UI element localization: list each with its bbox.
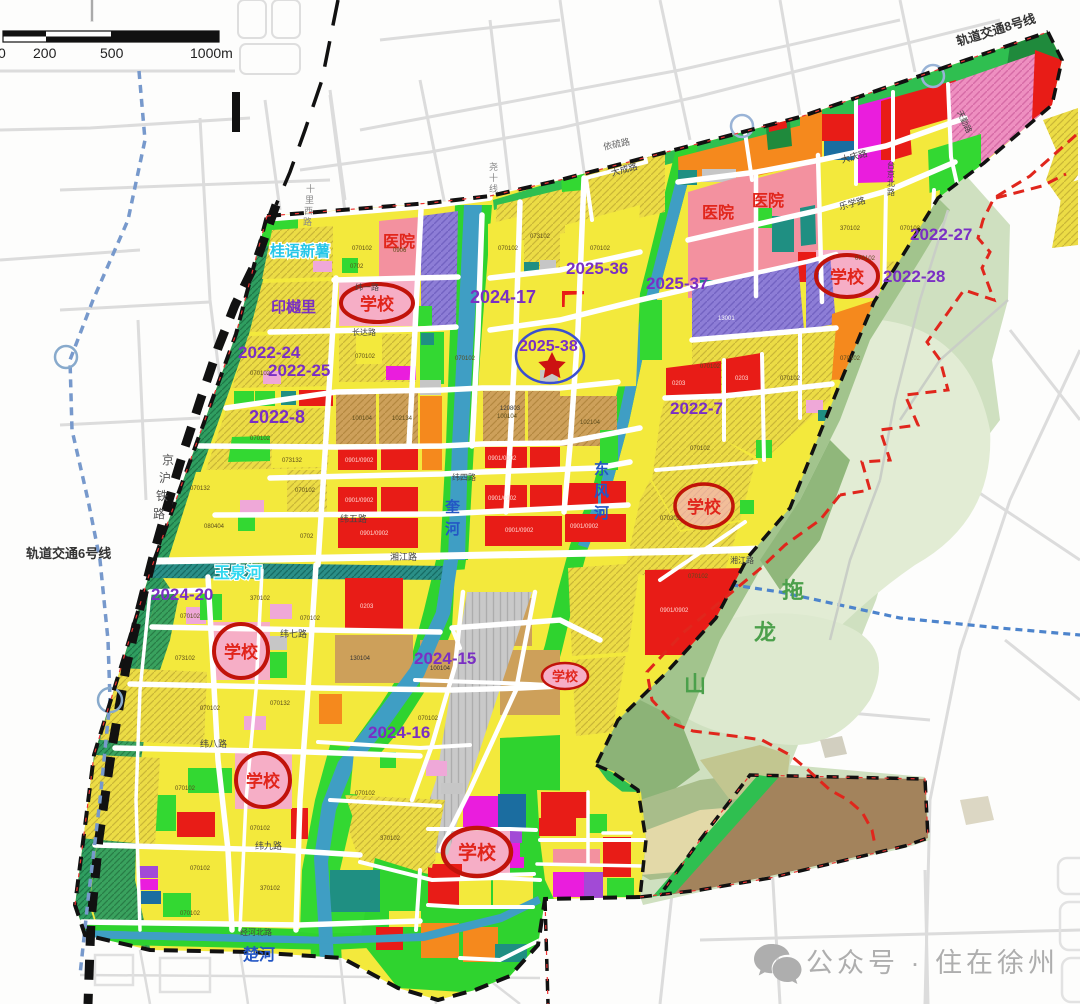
svg-text:073132: 073132	[282, 458, 303, 464]
svg-text:学校: 学校	[458, 841, 497, 864]
svg-text:学校: 学校	[246, 771, 281, 791]
svg-text:073102: 073102	[175, 656, 196, 662]
svg-text:2024-17: 2024-17	[470, 287, 536, 307]
svg-text:2025-36: 2025-36	[566, 259, 628, 278]
svg-text:0: 0	[0, 45, 6, 61]
svg-text:070102: 070102	[855, 256, 876, 262]
svg-text:073102: 073102	[530, 234, 551, 240]
svg-text:纬七路: 纬七路	[280, 628, 307, 639]
svg-text:0203: 0203	[672, 381, 686, 387]
svg-text:西: 西	[304, 206, 313, 216]
svg-text:路: 路	[887, 187, 895, 197]
svg-text:070102: 070102	[455, 356, 476, 362]
svg-text:070102: 070102	[300, 616, 321, 622]
svg-text:370102: 370102	[260, 886, 281, 892]
svg-text:十: 十	[306, 183, 315, 194]
svg-text:0901/0902: 0901/0902	[345, 498, 374, 504]
svg-text:京: 京	[162, 453, 174, 467]
svg-text:2024-16: 2024-16	[368, 723, 430, 742]
svg-text:2025-38: 2025-38	[519, 338, 578, 355]
svg-text:路: 路	[153, 506, 165, 521]
svg-text:070102: 070102	[418, 716, 439, 722]
svg-text:铁: 铁	[156, 489, 168, 503]
svg-text:2025-37: 2025-37	[646, 274, 708, 293]
svg-text:长达路: 长达路	[352, 327, 376, 337]
svg-text:北: 北	[887, 179, 895, 188]
svg-text:2022-28: 2022-28	[883, 267, 945, 286]
svg-text:沪: 沪	[159, 471, 171, 485]
svg-text:学校: 学校	[830, 267, 865, 287]
svg-text:经河北路: 经河北路	[240, 927, 272, 937]
svg-text:070102: 070102	[780, 376, 801, 382]
svg-text:070102: 070102	[250, 436, 271, 442]
svg-text:0901/0902: 0901/0902	[345, 458, 374, 464]
svg-text:桂语新薯: 桂语新薯	[269, 242, 330, 260]
svg-text:台: 台	[887, 160, 895, 170]
svg-text:070102: 070102	[700, 364, 721, 370]
svg-text:奎: 奎	[444, 498, 461, 516]
svg-text:070302: 070302	[660, 516, 681, 522]
svg-text:070102: 070102	[295, 488, 316, 494]
svg-text:070102: 070102	[840, 356, 861, 362]
svg-text:0203: 0203	[735, 376, 749, 382]
svg-text:河: 河	[594, 504, 609, 522]
svg-text:102104: 102104	[580, 420, 601, 426]
svg-text:医院: 医院	[752, 191, 784, 210]
svg-text:印樾里: 印樾里	[271, 298, 316, 316]
svg-text:500: 500	[100, 45, 124, 61]
svg-text:070102: 070102	[355, 354, 376, 360]
svg-text:京: 京	[887, 169, 895, 179]
svg-text:2022-25: 2022-25	[268, 361, 330, 380]
svg-text:线: 线	[489, 183, 498, 194]
svg-text:120803: 120803	[500, 406, 521, 412]
svg-text:070102: 070102	[175, 786, 196, 792]
svg-text:2022-8: 2022-8	[249, 407, 305, 427]
svg-text:200: 200	[33, 45, 57, 61]
svg-text:0702: 0702	[350, 264, 364, 270]
svg-text:山: 山	[684, 672, 706, 697]
svg-text:100104: 100104	[430, 666, 451, 672]
svg-text:医院: 医院	[702, 203, 734, 222]
svg-text:0901/0902: 0901/0902	[505, 528, 534, 534]
svg-text:湘江路: 湘江路	[390, 551, 417, 562]
svg-text:十: 十	[489, 172, 498, 183]
svg-text:070102: 070102	[688, 574, 709, 580]
svg-text:0901/0902: 0901/0902	[360, 531, 389, 537]
svg-text:楚河: 楚河	[243, 945, 275, 964]
svg-text:070102: 070102	[250, 826, 271, 832]
svg-text:河: 河	[445, 520, 460, 538]
svg-text:0203: 0203	[360, 604, 374, 610]
svg-text:风: 风	[594, 483, 609, 500]
svg-text:070132: 070132	[190, 486, 211, 492]
svg-text:0702: 0702	[300, 534, 314, 540]
svg-text:070102: 070102	[590, 246, 611, 252]
svg-text:070102: 070102	[180, 911, 201, 917]
svg-text:0901/0902: 0901/0902	[488, 496, 517, 502]
svg-text:080404: 080404	[204, 524, 225, 530]
svg-text:玉泉河: 玉泉河	[214, 563, 262, 582]
svg-text:370102: 370102	[380, 836, 401, 842]
svg-text:路: 路	[303, 216, 312, 227]
svg-text:2024-20: 2024-20	[151, 585, 213, 604]
svg-text:学校: 学校	[687, 497, 722, 517]
svg-text:纬八路: 纬八路	[200, 738, 227, 749]
svg-text:纬四路: 纬四路	[452, 472, 476, 482]
svg-text:拖: 拖	[782, 578, 804, 603]
svg-text:0906: 0906	[393, 248, 407, 254]
svg-text:070102: 070102	[190, 866, 211, 872]
svg-text:100104: 100104	[497, 414, 518, 420]
svg-text:学校: 学校	[224, 642, 259, 662]
svg-text:纬一路: 纬一路	[355, 282, 379, 292]
svg-text:1000m: 1000m	[190, 45, 233, 61]
svg-text:纬九路: 纬九路	[255, 840, 282, 851]
svg-text:公众号 · 住在徐州: 公众号 · 住在徐州	[806, 948, 1059, 978]
svg-text:2022-7: 2022-7	[670, 399, 723, 418]
svg-text:070102: 070102	[900, 226, 921, 232]
svg-text:纬五路: 纬五路	[340, 513, 367, 524]
svg-text:0901/0902: 0901/0902	[660, 608, 689, 614]
svg-text:学校: 学校	[360, 294, 395, 314]
svg-text:070102: 070102	[352, 246, 373, 252]
svg-text:070102: 070102	[250, 371, 271, 377]
svg-text:102134: 102134	[392, 416, 413, 422]
svg-text:070102: 070102	[498, 246, 519, 252]
svg-text:湘江路: 湘江路	[730, 555, 754, 565]
svg-text:070102: 070102	[180, 614, 201, 620]
svg-text:轨道交通6号线: 轨道交通6号线	[26, 546, 111, 561]
svg-text:370102: 370102	[840, 226, 861, 232]
svg-text:0901/0902: 0901/0902	[488, 456, 517, 462]
svg-text:2022-24: 2022-24	[238, 343, 301, 362]
svg-text:070132: 070132	[270, 701, 291, 707]
svg-text:130104: 130104	[350, 656, 371, 662]
svg-text:0901/0902: 0901/0902	[570, 524, 599, 530]
svg-text:070102: 070102	[355, 791, 376, 797]
svg-text:370102: 370102	[250, 596, 271, 602]
svg-text:070102: 070102	[690, 446, 711, 452]
svg-text:070102: 070102	[200, 706, 221, 712]
svg-text:里: 里	[305, 195, 314, 205]
svg-text:100104: 100104	[352, 416, 373, 422]
svg-text:13001: 13001	[718, 316, 735, 322]
svg-text:尧: 尧	[489, 161, 498, 172]
svg-text:学校: 学校	[552, 669, 579, 684]
svg-text:东: 东	[594, 460, 609, 478]
svg-text:龙: 龙	[754, 620, 776, 645]
